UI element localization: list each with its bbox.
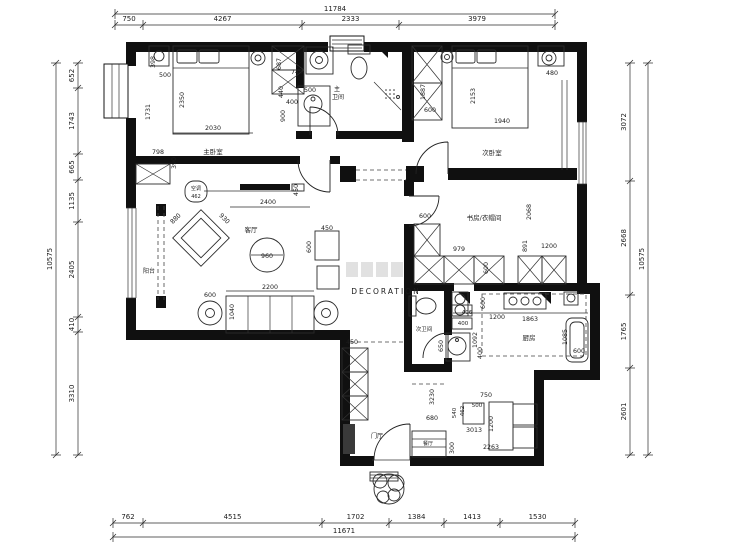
- dim-text: 750: [122, 15, 135, 23]
- dim-text: 500: [472, 403, 483, 409]
- dim-text: 1384: [408, 513, 426, 521]
- room-label-living: 客厅: [245, 225, 259, 234]
- dim-text: 10575: [46, 248, 54, 270]
- dim-text: 600: [480, 297, 487, 309]
- dim-text: 462: [460, 406, 466, 417]
- dim-text: 390: [171, 157, 178, 169]
- dim-text: 1863: [522, 316, 538, 323]
- bed-master: [173, 46, 253, 134]
- dim-text: 1887: [420, 84, 427, 100]
- ceiling-fan: [542, 51, 556, 65]
- x-cell: [136, 164, 170, 184]
- dim-text: 1135: [68, 192, 76, 210]
- room-label-balcony: 阳台: [143, 267, 155, 275]
- dim-text: 1731: [145, 104, 152, 120]
- dim-text: 450: [293, 184, 300, 196]
- dim-text: 540: [452, 407, 458, 418]
- dim-text: 3979: [468, 15, 486, 23]
- room-label-master-bath: 卫间: [332, 93, 344, 101]
- entry-plant: [373, 474, 404, 504]
- dim-text: 750: [480, 392, 492, 399]
- room-label-foyer: 门厅: [371, 432, 383, 440]
- balcony-window: [126, 208, 136, 298]
- dim-text: 410: [68, 318, 76, 331]
- room-label-kitchen: 厨房: [523, 333, 536, 342]
- dim-text: 4267: [214, 15, 232, 23]
- dim-text: 680: [426, 415, 438, 422]
- bed-second: [452, 46, 528, 128]
- dim-text: 10575: [638, 248, 646, 270]
- dim-text: 600: [573, 348, 585, 355]
- dim-text: 891: [522, 240, 529, 252]
- door-swing-master-bedroom: [298, 160, 330, 192]
- dim-text: 2400: [260, 199, 276, 206]
- dim-text: 1530: [529, 513, 547, 521]
- dim-text: 1765: [620, 323, 628, 341]
- sofa: [226, 291, 314, 333]
- dim-text: 979: [453, 246, 465, 253]
- dim-text: 11784: [324, 5, 347, 13]
- dim-text: 2601: [620, 403, 628, 421]
- bay-window-master: [104, 64, 128, 118]
- dim-text: 300: [449, 442, 456, 454]
- shower-area: [374, 82, 401, 110]
- dim-text: 1200: [541, 243, 557, 250]
- dim-text: 798: [152, 149, 164, 156]
- dim-text: 3072: [620, 113, 628, 131]
- dim-text: 960: [261, 253, 273, 260]
- dim-text: 480: [546, 70, 558, 77]
- watermark: [346, 262, 403, 277]
- dim-text: 500: [304, 87, 316, 94]
- dim-text: 11671: [333, 527, 355, 535]
- dim-text: 3310: [68, 385, 76, 403]
- bedside-lamp: [441, 51, 453, 63]
- water-heater: [566, 318, 588, 362]
- door-swing-study: [409, 196, 439, 226]
- basin-second-bath: [446, 333, 470, 361]
- x-cell: [518, 256, 542, 284]
- dim-text: 1092: [472, 332, 479, 348]
- dim-text: 2350: [179, 92, 186, 108]
- x-cell: [412, 83, 442, 120]
- floor-plan-page: 7504267233339791178476245151702138414131…: [0, 0, 740, 546]
- room-label-second-bath: 次卫间: [416, 325, 433, 333]
- dim-text: 1200: [489, 314, 505, 321]
- dim-text: 1413: [463, 513, 481, 521]
- dining-chair: [513, 404, 537, 425]
- dim-text: 665: [68, 160, 76, 173]
- side-table: [315, 231, 339, 260]
- dim-text: 1743: [68, 112, 76, 130]
- dimension-texts: 3985001731235020307983906877464404009005…: [145, 56, 585, 454]
- dim-text: 930: [217, 212, 230, 225]
- room-label-master-bedroom: 主卧室: [203, 147, 223, 156]
- dim-text: 500: [159, 72, 171, 79]
- dim-text: 3013: [466, 427, 482, 434]
- dim-text: 398: [150, 56, 157, 68]
- door-swing-master-bath: [310, 107, 338, 135]
- floor-plan-canvas: 7504267233339791178476245151702138414131…: [0, 0, 740, 546]
- dim-text: 1085: [562, 329, 569, 345]
- dim-text: 2405: [68, 261, 76, 279]
- room-label-study: 书房/衣帽间: [467, 213, 502, 222]
- x-cell: [542, 256, 566, 284]
- x-cell: [444, 256, 474, 284]
- dim-text: 652: [68, 69, 76, 82]
- dim-text: 2333: [342, 15, 360, 23]
- dim-text: 400: [286, 99, 298, 106]
- dim-text: 400: [458, 321, 469, 327]
- dim-text: 1702: [347, 513, 365, 521]
- dim-text: 406: [462, 310, 473, 316]
- dim-text: 450: [321, 225, 333, 232]
- ac-unit-size: 462: [191, 194, 201, 200]
- dining-chair: [513, 427, 537, 448]
- dim-text: 450: [346, 339, 358, 346]
- dim-text: 600: [204, 292, 216, 299]
- dim-text: 746: [291, 69, 303, 76]
- watermark-text: DECORATION: [351, 287, 420, 296]
- dim-text: 600: [306, 241, 313, 253]
- dim-text: 1940: [494, 118, 510, 125]
- dim-text: 2263: [483, 444, 499, 451]
- room-label-master-bath: 主: [334, 85, 340, 93]
- dim-text: 2153: [470, 88, 477, 104]
- dim-text: 2068: [526, 204, 533, 220]
- x-cell: [414, 224, 440, 256]
- dim-text: 880: [169, 212, 182, 225]
- dim-text: 1040: [229, 304, 236, 320]
- floor-speaker: [314, 301, 338, 325]
- dim-text: 3230: [429, 389, 436, 405]
- dim-text: 400: [477, 347, 484, 359]
- dim-text: 600: [424, 107, 436, 114]
- dim-text: 650: [438, 340, 445, 352]
- room-label-second-bedroom: 次卧室: [482, 148, 502, 157]
- dim-text: 2668: [620, 229, 628, 247]
- bedside-lamp: [251, 51, 265, 65]
- room-label-dining: 餐厅: [423, 440, 433, 447]
- x-cell: [414, 256, 444, 284]
- floor-speaker: [198, 301, 222, 325]
- dim-text: 762: [121, 513, 134, 521]
- dim-text: 900: [280, 110, 287, 122]
- dim-text: 2200: [262, 284, 278, 291]
- door-swing-entry: [374, 424, 410, 460]
- dim-text: 440: [278, 86, 285, 98]
- dim-text: 2030: [205, 125, 221, 132]
- dim-text: 600: [483, 262, 490, 274]
- ac-unit-label: 空调: [191, 185, 201, 192]
- shoe-cabinet: [343, 424, 355, 454]
- tv-console: [204, 184, 304, 191]
- dim-text: 600: [419, 213, 431, 220]
- vent-window-top: [330, 36, 364, 51]
- side-table: [317, 266, 339, 289]
- dim-text: 687: [276, 58, 283, 70]
- toilet-second-bath: [409, 296, 436, 316]
- dim-text: 1200: [488, 416, 495, 432]
- dim-text: 4515: [224, 513, 242, 521]
- wardrobes: [136, 46, 566, 420]
